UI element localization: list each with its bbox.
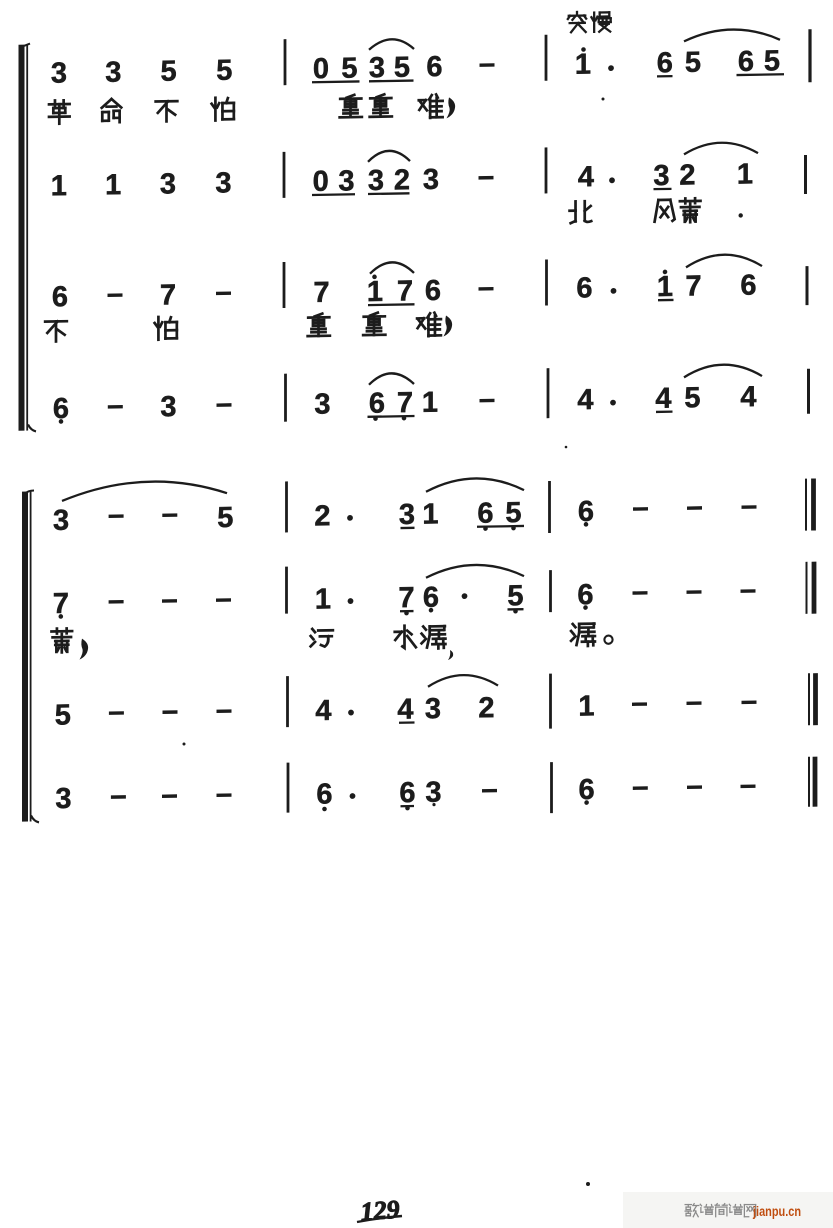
- svg-text:3: 3: [425, 693, 441, 725]
- svg-text:1: 1: [575, 48, 591, 80]
- svg-text:1: 1: [422, 387, 438, 419]
- svg-text:7: 7: [397, 387, 413, 419]
- svg-text:2: 2: [314, 500, 330, 532]
- svg-text:1: 1: [315, 583, 331, 615]
- svg-text:0: 0: [313, 53, 329, 85]
- svg-text:6: 6: [52, 281, 68, 313]
- svg-text:3: 3: [653, 160, 669, 192]
- svg-text:5: 5: [217, 502, 233, 534]
- svg-text:3: 3: [51, 57, 67, 89]
- svg-text:1: 1: [578, 690, 594, 722]
- svg-text:5: 5: [505, 497, 521, 529]
- svg-text:4: 4: [740, 381, 756, 413]
- svg-text:3: 3: [53, 505, 69, 537]
- svg-text:5: 5: [55, 699, 71, 731]
- svg-text:jianpu.cn: jianpu.cn: [752, 1203, 801, 1219]
- svg-text:3: 3: [338, 165, 354, 197]
- svg-text:3: 3: [55, 783, 71, 815]
- svg-text:2: 2: [394, 164, 410, 196]
- svg-text:5: 5: [341, 52, 357, 84]
- svg-text:1: 1: [657, 271, 673, 303]
- svg-text:4: 4: [578, 161, 594, 193]
- svg-text:1: 1: [737, 158, 753, 190]
- svg-text:6: 6: [477, 497, 493, 529]
- svg-text:1: 1: [51, 170, 67, 202]
- svg-text:6: 6: [657, 47, 673, 79]
- svg-text:7: 7: [313, 277, 329, 309]
- svg-text:3: 3: [215, 167, 231, 199]
- svg-text:6: 6: [316, 778, 332, 810]
- svg-text:7: 7: [398, 582, 414, 614]
- svg-text:6: 6: [576, 272, 592, 304]
- svg-text:7: 7: [685, 270, 701, 302]
- svg-text:5: 5: [684, 382, 700, 414]
- svg-text:3: 3: [105, 56, 121, 88]
- svg-text:4: 4: [577, 384, 593, 416]
- svg-text:0: 0: [313, 166, 329, 198]
- svg-text:6: 6: [738, 46, 754, 78]
- svg-text:4: 4: [655, 383, 671, 415]
- svg-text:5: 5: [507, 580, 523, 612]
- svg-text:3: 3: [423, 164, 439, 196]
- svg-text:3: 3: [369, 52, 385, 84]
- svg-text:6: 6: [740, 269, 756, 301]
- svg-text:5: 5: [764, 45, 780, 77]
- svg-text:3: 3: [160, 168, 176, 200]
- svg-text:5: 5: [394, 52, 410, 84]
- svg-text:6: 6: [369, 387, 385, 419]
- svg-text:1: 1: [422, 498, 438, 530]
- svg-text:7: 7: [160, 279, 176, 311]
- svg-text:1: 1: [105, 169, 121, 201]
- svg-text:4: 4: [315, 695, 331, 727]
- svg-text:1: 1: [367, 276, 383, 308]
- svg-text:5: 5: [216, 55, 232, 87]
- svg-text:6: 6: [426, 51, 442, 83]
- svg-text:6: 6: [425, 275, 441, 307]
- svg-text:3: 3: [399, 499, 415, 531]
- svg-text:7: 7: [397, 275, 413, 307]
- svg-text:3: 3: [368, 165, 384, 197]
- svg-text:6: 6: [399, 777, 415, 809]
- svg-text:5: 5: [685, 47, 701, 79]
- svg-text:2: 2: [679, 159, 695, 191]
- svg-text:5: 5: [161, 56, 177, 88]
- svg-text:3: 3: [314, 388, 330, 420]
- svg-text:4: 4: [397, 693, 413, 725]
- svg-text:3: 3: [160, 391, 176, 423]
- svg-text:2: 2: [478, 692, 494, 724]
